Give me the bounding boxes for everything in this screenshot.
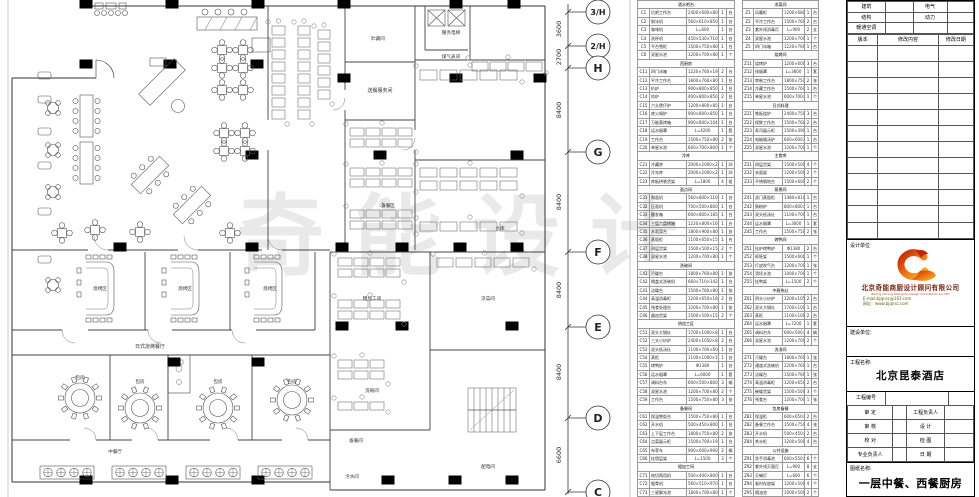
table-row: 凉菜间 — [743, 1, 819, 9]
equipment-schedule-right: 凉菜间Z1风幕柜1200×680×19801台Z2平冷工作台1500×760×8… — [742, 0, 819, 497]
table-row: C55烤鸭炉Ф13801台 — [638, 362, 735, 370]
table-row: C38双星水池1200×700×8001个 — [638, 253, 735, 261]
grid-bubble-label: D — [593, 412, 602, 425]
design-unit-section: 设计单位 北京奇能商厨设计顾问有限公司 Beijing Qineng Shang… — [847, 239, 974, 326]
project-no-row: 工程编号 — [847, 391, 974, 405]
table-row: C66挂墙层架L=15003个 — [638, 454, 735, 462]
table-row: C72锯骨机560×510×9701台 — [638, 480, 735, 488]
table-row: 暖通空调 — [848, 23, 974, 34]
dimension-label: 8400 — [555, 102, 563, 119]
table-row: Z81保温柜600×650×18002台 — [743, 412, 819, 420]
room-labels: 贮藏间送餐服务间服务电梯煤气表间备餐区仓库粗加工间洗碗间凉菜间配电间污水间备餐间… — [75, 29, 505, 480]
table-row: C13扒炉900×800×8501台 — [638, 85, 735, 93]
table-row: C18运水烟罩L=42001套 — [638, 127, 735, 135]
table-row: Z63蒸柜1100×1000×19002台 — [743, 312, 819, 320]
dimension-label: 3600 — [555, 21, 563, 38]
table-row: Z33不锈钢地台1500×600×1502个 — [743, 177, 819, 185]
table-row: Z84茶水柜1200×500×8004台 — [743, 438, 819, 446]
bar-counter — [95, 3, 271, 52]
table-row: 冷库 — [638, 152, 735, 160]
revision-empty-row — [848, 142, 974, 158]
dimension-label: 8400 — [555, 282, 563, 299]
table-row: 公共设施 — [743, 446, 819, 454]
structural-columns — [80, 0, 547, 485]
room-label: 包房 — [213, 378, 223, 385]
table-row: C14炸炉400×800×8502台 — [638, 93, 735, 101]
room-label: 服务电梯 — [442, 29, 461, 36]
table-row: Z22保鲜工作台1500×760×8002台 — [743, 118, 819, 126]
table-row: Z12排烟罩L=36001套 — [743, 68, 819, 76]
table-row: Z52晾胚架1500×600×17001个 — [743, 253, 819, 261]
table-row: 审 核设 计 — [848, 419, 974, 433]
table-row: Z55挂鸭架L=15002个 — [743, 278, 819, 286]
grid-bubble-label: C — [594, 486, 602, 497]
table-row: 西厨房 — [638, 59, 735, 67]
sheet-name: 一层中餐、西餐厨房 — [847, 475, 974, 491]
table-row: C31和面机560×800×11001台 — [638, 194, 735, 202]
room-label: 仓库 — [495, 225, 505, 232]
room-label: 凉菜间 — [481, 295, 495, 302]
table-row: Z13串制工作台1800×750×8002张 — [743, 76, 819, 84]
room-label: 粗加工间 — [363, 295, 382, 302]
room-label: 烧烤区 — [263, 285, 277, 292]
table-row: C17万能蒸烤箱900×840×10401台 — [638, 118, 735, 126]
table-row: Z44运水烟罩L=30001套 — [743, 219, 819, 227]
table-row: Z53打皮吹气台1200×700×8001张 — [743, 261, 819, 269]
table-row: Z94临时存放架1200×500×15504个 — [743, 480, 819, 488]
project-section: 工程名称: 北京昆泰酒店 — [847, 356, 974, 391]
revision-empty-row — [848, 109, 974, 125]
project-no-label: 工程编号 — [847, 392, 885, 405]
table-row: C2制冰机560×610×8501台 — [638, 17, 735, 25]
project-label: 工程名称: — [847, 357, 974, 366]
table-row: C35木面案台1800×900×8001张 — [638, 227, 735, 235]
owner-section: 建设单位: — [847, 326, 974, 356]
room-label: 污水间 — [345, 473, 359, 480]
table-row: 结构动力 — [848, 12, 974, 23]
table-row: C45残食处理台1200×700×8001张 — [638, 303, 735, 311]
sheet-name-section: 图纸名称: 一层中餐、西餐厨房 — [847, 462, 974, 497]
table-row: Z24电磁矮汤炉600×600×6001台 — [743, 135, 819, 143]
table-row: 日式料理 — [743, 101, 819, 109]
grid-bubble-label: 2/H — [590, 42, 605, 51]
revision-empty-row — [848, 174, 974, 190]
room-label: 包房 — [135, 378, 145, 385]
table-row: Z65调料台车600×500×8004辆 — [743, 328, 819, 336]
table-row: Z15单星水池600×700×8001个 — [743, 93, 819, 101]
table-row: C43洁碟台1500×760×8001张 — [638, 286, 735, 294]
table-row: 审 定工程负责人 — [848, 405, 974, 419]
table-row: C41污碟台1800×760×8001张 — [638, 270, 735, 278]
table-row: Z54烫坯水池1000×700×8001个 — [743, 270, 819, 278]
table-row: C62开水机500×450×8001台 — [638, 421, 735, 429]
table-row: Z42肠粉炉800×800×8501台 — [743, 202, 819, 210]
table-row: Z93灭蝇灯L=6006个 — [743, 471, 819, 479]
table-row: Z73洁碟台1500×760×8001张 — [743, 370, 819, 378]
table-row: 备餐间 — [638, 404, 735, 412]
grid-bubble-label: 3/H — [590, 8, 605, 17]
room-label: 烧烤区 — [93, 285, 107, 292]
table-row: C52三头小炒炉2400×1050×8502台 — [638, 337, 735, 345]
revision-table: 版本 修改内容 修改日期 — [847, 34, 974, 239]
table-row: 蒸煮间 — [743, 185, 819, 193]
equipment-schedule-left: 酒水吧台C1后吧工作台2400×600×8001台C2制冰机560×610×85… — [637, 0, 735, 497]
room-label: 煤气表间 — [442, 53, 461, 60]
room-label: 送餐服务间 — [367, 87, 392, 94]
table-row: Z3紫外线消毒灯L=9002支 — [743, 26, 819, 34]
table-row: C54蒸柜1100×1000×19001台 — [638, 354, 735, 362]
revision-empty-row — [848, 190, 974, 206]
room-label: 备餐区 — [381, 202, 395, 209]
table-row: 主食库 — [743, 152, 819, 160]
company-name-cn: 北京奇能商厨设计顾问有限公司 — [847, 282, 974, 292]
table-row: 包房备餐 — [743, 404, 819, 412]
dimension-label: 2700 — [555, 49, 563, 66]
table-row: C34三层六盘烤箱1220×800×16001台 — [638, 219, 735, 227]
table-row: Z32米面架1200×500×3002个 — [743, 169, 819, 177]
table-row: C15六头煲仔炉1200×800×8501台 — [638, 101, 735, 109]
revision-empty-row — [848, 61, 974, 77]
table-row: C12平冷工作台1800×760×8001台 — [638, 76, 735, 84]
grid-strip: 3/H2/HHGFEDC3600270084008400840084006600 — [555, 0, 610, 497]
table-row: C37四层货架1500×500×15502个 — [638, 244, 735, 252]
table-row: C36蒸饭柜1100×650×15001台 — [638, 236, 735, 244]
room-label: 洗碗间 — [365, 387, 379, 394]
table-row: 酒水吧台 — [638, 1, 735, 9]
table-row: Z74高温消毒柜1200×650×18002台 — [743, 379, 819, 387]
table-row: 洗消间 — [743, 345, 819, 353]
table-row: C51双头大锅灶1700×1000×8501台 — [638, 328, 735, 336]
table-row: 专业负责人日 期 — [848, 448, 974, 462]
revision-empty-row — [848, 206, 974, 222]
table-row: Z25双星水池1200×700×8001个 — [743, 143, 819, 151]
table-row: C57调料台车600×500×8003辆 — [638, 379, 735, 387]
revision-empty-row — [848, 158, 974, 174]
table-row: Z95隔油池1000×500×4002个 — [743, 488, 819, 496]
table-row: 中厨热灶 — [743, 286, 819, 294]
table-row: C23库板拼装货架L=18004组 — [638, 177, 735, 185]
table-row: Z4双星水池1200×700×8001个 — [743, 34, 819, 42]
dimension-label: 8400 — [555, 364, 563, 381]
grid-bubble-label: F — [594, 246, 602, 259]
table-row: C33醒发箱600×800×18501台 — [638, 211, 735, 219]
table-row: 热加工区 — [638, 320, 735, 328]
staircase — [468, 388, 516, 432]
table-row: 校 对检 图 — [848, 434, 974, 448]
table-row: 烧烤间 — [743, 51, 819, 59]
table-row: C3咖啡机L=6001台 — [638, 26, 735, 34]
table-row: C16底火焗炉900×800×8501台 — [638, 110, 735, 118]
table-row: Z66双星水池1200×700×8002个 — [743, 337, 819, 345]
table-row: C46器皿货架1500×500×15502个 — [638, 312, 735, 320]
revision-empty-row — [848, 77, 974, 93]
table-row: C58双星水池1200×700×8002个 — [638, 387, 735, 395]
table-row: Z82备餐工作台1500×750×8004张 — [743, 421, 819, 429]
table-row: Z64运水烟罩L=72001套 — [743, 320, 819, 328]
table-row: Z43双头低汤灶1100×700×6001台 — [743, 211, 819, 219]
table-row: C53双头低汤灶1100×700×6001台 — [638, 345, 735, 353]
table-row: C44高温消毒柜1200×650×18002台 — [638, 295, 735, 303]
table-row: Z71污碟台1800×760×8001张 — [743, 354, 819, 362]
table-row: C20单星水池600×700×8001个 — [638, 143, 735, 151]
table-row: Z62双头大锅灶1700×1000×8501台 — [743, 303, 819, 311]
revision-empty-row — [848, 222, 974, 238]
table-row: Z23寿司展示柜1500×390×3001台 — [743, 127, 819, 135]
table-row: C63上下层工作台1800×750×8002张 — [638, 429, 735, 437]
dimension-label: 8400 — [555, 194, 563, 211]
company-logo-icon — [882, 249, 940, 281]
table-row: Z91洗手消毒池600×550×8006个 — [743, 454, 819, 462]
table-row: C6双星水池1200×700×8001个 — [638, 51, 735, 59]
table-row: Z51挂炉烤鸭炉Ф13802台 — [743, 244, 819, 252]
revision-empty-row — [848, 125, 974, 141]
revision-col-date: 修改日期 — [938, 34, 973, 45]
table-row: 洗碗间 — [638, 261, 735, 269]
table-row: Z72通道式洗碗机2200×760×15001台 — [743, 362, 819, 370]
grid-bubble-label: H — [593, 62, 602, 75]
revision-col-version: 版本 — [848, 34, 878, 45]
dimension-label: 6600 — [555, 447, 563, 464]
service-elevator — [428, 10, 465, 26]
table-row: Z45工作台1500×750×8002张 — [743, 227, 819, 235]
table-row: Z1风幕柜1200×680×19801台 — [743, 9, 819, 17]
room-label: 烧烤区 — [178, 285, 192, 292]
room-label: 中餐厅 — [108, 448, 122, 455]
table-row: Z11烧烤炉1200×600×8503台 — [743, 59, 819, 67]
project-no-extra — [948, 392, 974, 405]
table-row: C32压面机700×500×8001台 — [638, 202, 735, 210]
discipline-table: 建筑电气结构动力暖通空调 — [847, 1, 974, 34]
table-row: 建筑电气 — [848, 2, 974, 13]
table-row: 面点间 — [638, 185, 735, 193]
project-no-value — [885, 392, 948, 405]
sheet-name-label: 图纸名称: — [847, 463, 974, 472]
drawing-sheet: 奇能设计 — [0, 0, 979, 497]
table-row: Z14冷藏工作台1500×760×8001台 — [743, 85, 819, 93]
table-row: C73三星解冻池1800×700×8001个 — [638, 488, 735, 496]
signature-table: 审 定工程负责人审 核设 计校 对检 图专业负责人日 期 — [847, 405, 974, 463]
table-row: C11四门冰箱1220×760×19802台 — [638, 68, 735, 76]
table-row: C22冷冻库2000×2000×22001间 — [638, 169, 735, 177]
table-row: Z21铁板烧炉2400×750×8003台 — [743, 110, 819, 118]
design-unit-label: 设计单位 — [850, 242, 870, 249]
table-row: C5平台雪柜1500×750×8001台 — [638, 43, 735, 51]
grid-bubble-label: E — [594, 321, 602, 334]
table-row: C61保温售饭台1500×750×8001台 — [638, 412, 735, 420]
room-label: 备餐间 — [349, 437, 363, 444]
table-row: Z83开水机500×450×8002台 — [743, 429, 819, 437]
table-row: C21冷藏库2000×2000×22001间 — [638, 160, 735, 168]
table-row: C56运水烟罩L=60001套 — [638, 370, 735, 378]
table-row: 烤鸭间 — [743, 236, 819, 244]
table-row: C42揭盖式洗碗机660×710×14201台 — [638, 278, 735, 286]
table-row: C4洗杯机450×530×7101台 — [638, 34, 735, 42]
table-row: C19工作台1500×750×8002张 — [638, 135, 735, 143]
table-row: Z41双门蒸饭柜1480×810×19001台 — [743, 194, 819, 202]
table-row: C71绞切两用机500×400×8001台 — [638, 471, 735, 479]
room-label: 日式烧烤餐厅 — [135, 343, 165, 350]
revision-col-content: 修改内容 — [878, 34, 938, 45]
grid-bubble-label: G — [593, 146, 602, 159]
table-row: C1后吧工作台2400×600×8001台 — [638, 9, 735, 17]
title-block: 建筑电气结构动力暖通空调 版本 修改内容 修改日期 设计单位 — [846, 0, 975, 497]
table-row: Z31四层货架1500×500×15504个 — [743, 160, 819, 168]
table-row: Z92紫外线灭菌灯L=9008支 — [743, 463, 819, 471]
owner-label: 建设单位: — [850, 330, 872, 336]
table-row: 粗加工间 — [638, 463, 735, 471]
room-label: 贮藏间 — [371, 35, 385, 42]
project-name: 北京昆泰酒店 — [847, 368, 974, 383]
room-label: 配电间 — [481, 463, 495, 470]
room-label: 包房 — [287, 378, 297, 385]
table-row: Z61四头小炒炉3200×1050×8502台 — [743, 295, 819, 303]
revision-empty-row — [848, 93, 974, 109]
table-row: C59工作台1500×750×8003张 — [638, 396, 735, 404]
company-name-en: Beijing Qineng Shangchu Design Consultan… — [850, 292, 971, 296]
room-label: 包房 — [75, 374, 85, 381]
table-row: C65布菲车900×600×9002辆 — [638, 446, 735, 454]
revision-empty-row — [848, 45, 974, 61]
floor-plan: 贮藏间送餐服务间服务电梯煤气表间备餐区仓库粗加工间洗碗间凉菜间配电间污水间备餐间… — [0, 0, 636, 497]
table-row: Z76残食台1200×700×8001张 — [743, 396, 819, 404]
company-website: 网址：www.bjqnsc.com — [847, 301, 974, 307]
table-row: Z5四门冰箱1220×760×19801台 — [743, 43, 819, 51]
table-row: Z75碗碟货架1500×500×15503个 — [743, 387, 819, 395]
table-row: C64点菜展示柜1500×700×19801台 — [638, 438, 735, 446]
table-row: Z2平冷工作台1500×760×8002台 — [743, 17, 819, 25]
